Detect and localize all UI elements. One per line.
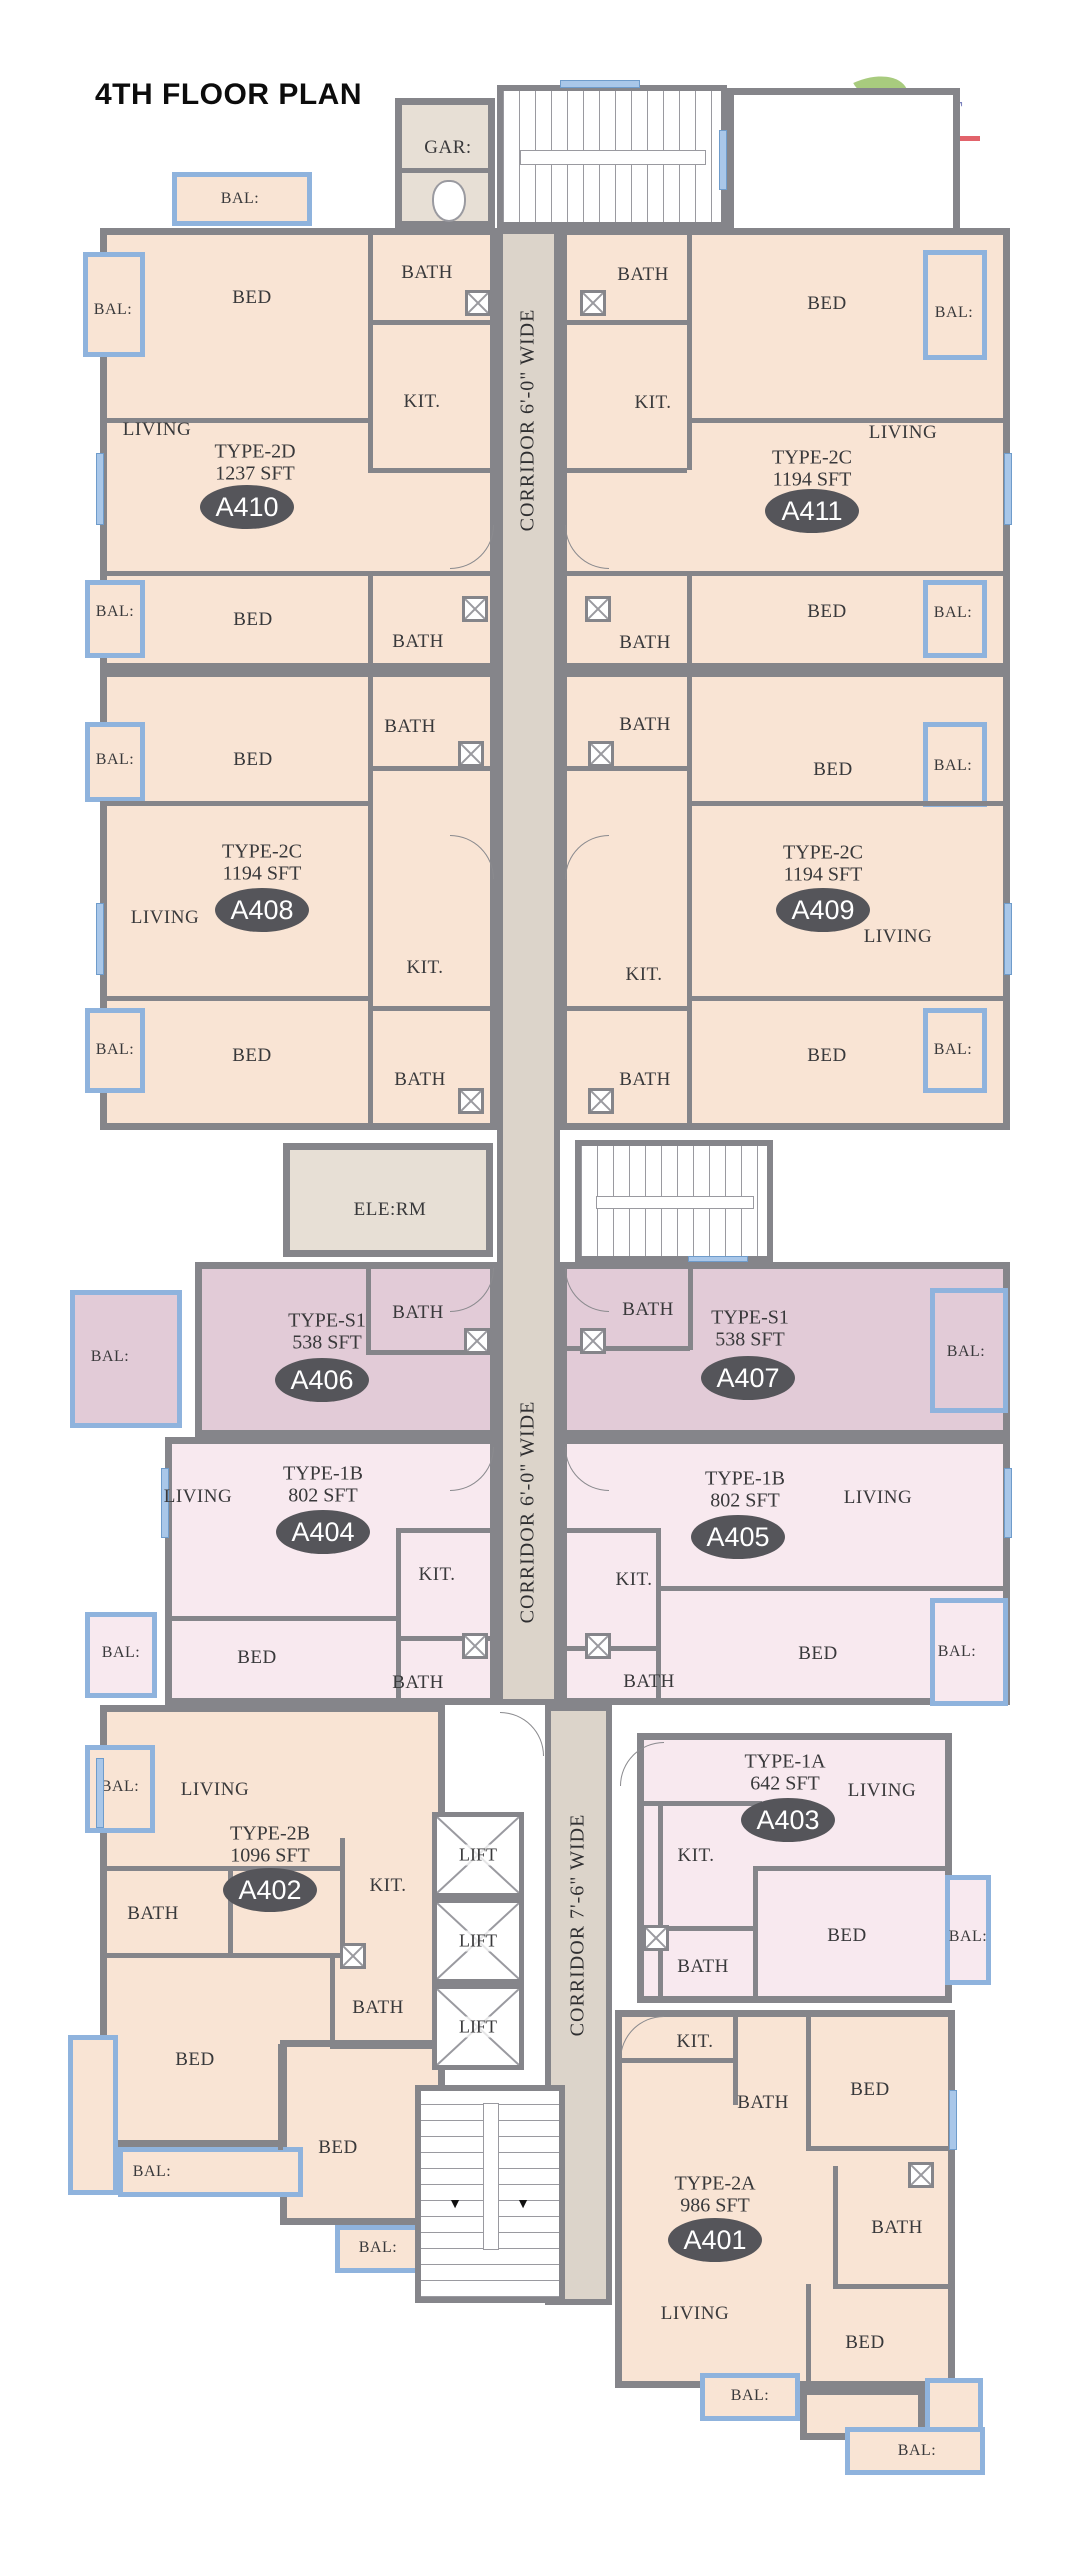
room-label-bed: BED <box>807 293 847 315</box>
window-strip <box>1004 903 1012 975</box>
room-label-bed: BED <box>850 2079 890 2101</box>
balcony-label: BAL: <box>133 2163 171 2181</box>
door-arc <box>620 1742 664 1786</box>
room-label-bed: BED <box>813 759 853 781</box>
balcony-label: BAL: <box>938 1643 976 1661</box>
interior-wall <box>658 1801 663 2003</box>
unit-a410 <box>100 228 497 670</box>
unit-area-a406: 538 SFT <box>292 1332 361 1355</box>
room-label-living: LIVING <box>844 1487 912 1509</box>
unit-number-a408: A408 <box>215 888 309 932</box>
unit-type-a409: TYPE-2C <box>783 842 863 865</box>
balcony-label: BAL: <box>934 757 972 775</box>
duct-shaft <box>588 741 614 767</box>
corridor-label: CORRIDOR 6'-0" WIDE <box>517 309 540 532</box>
unit-number-a401: A401 <box>668 2218 762 2262</box>
interior-wall <box>688 1262 693 1350</box>
interior-wall <box>366 1262 371 1355</box>
room-label-living: LIVING <box>123 419 191 441</box>
wc-fixture <box>432 180 466 222</box>
unit-area-a409: 1194 SFT <box>784 864 863 887</box>
room-label-bed: BED <box>232 1045 272 1067</box>
balcony-label: BAL: <box>731 2387 769 2405</box>
unit-area-a401: 986 SFT <box>680 2195 749 2218</box>
duct-shaft <box>585 1633 611 1659</box>
interior-wall <box>368 571 373 670</box>
room-label-bed: BED <box>232 287 272 309</box>
unit-area-a403: 642 SFT <box>750 1773 819 1796</box>
balcony-label: BAL: <box>935 304 973 322</box>
unit-area-a402: 1096 SFT <box>230 1845 309 1868</box>
unit-area-a410: 1237 SFT <box>215 463 294 486</box>
duct-shaft <box>462 1633 488 1659</box>
unit-area-a407: 538 SFT <box>715 1329 784 1352</box>
balcony-label: BAL: <box>949 1928 987 1946</box>
unit-type-a406: TYPE-S1 <box>288 1310 366 1333</box>
room-label-elerm: ELE:RM <box>354 1199 427 1221</box>
unit-number-a403: A403 <box>741 1798 835 1842</box>
window-strip <box>560 80 640 88</box>
room-label-bath: BATH <box>127 1903 179 1925</box>
interior-wall <box>687 228 692 470</box>
lift-shaft: LIFT <box>432 1984 524 2070</box>
unit-type-a407: TYPE-S1 <box>711 1307 789 1330</box>
interior-wall <box>368 1006 497 1011</box>
window-strip <box>1004 1468 1012 1538</box>
duct-shaft <box>643 1925 669 1951</box>
room-label-bath: BATH <box>623 1671 675 1693</box>
room-label-living: LIVING <box>661 2303 729 2325</box>
room-label-kit: KIT. <box>404 391 441 413</box>
room-label-living: LIVING <box>164 1486 232 1508</box>
lift-label: LIFT <box>456 1931 500 1952</box>
balcony <box>925 2378 983 2433</box>
interior-wall <box>560 766 687 771</box>
interior-wall <box>660 1586 1010 1591</box>
interior-wall <box>833 2284 955 2289</box>
room-label-bath: BATH <box>394 1069 446 1091</box>
balcony-label: BAL: <box>94 301 132 319</box>
stair-rail <box>520 150 705 165</box>
interior-wall <box>806 2146 955 2151</box>
room-label-living: LIVING <box>131 907 199 929</box>
unit-area-a408: 1194 SFT <box>223 863 302 886</box>
room-label-kit: KIT. <box>370 1875 407 1897</box>
page-title: 4TH FLOOR PLAN <box>95 78 362 112</box>
room-label-bed: BED <box>175 2049 215 2071</box>
room-label-bath: BATH <box>871 2217 923 2239</box>
lift-label: LIFT <box>456 1845 500 1866</box>
duct-shaft <box>588 1088 614 1114</box>
room-label-kit: KIT. <box>616 1569 653 1591</box>
room-label-bath: BATH <box>352 1997 404 2019</box>
room-label-kit: KIT. <box>407 957 444 979</box>
duct-shaft <box>465 290 491 316</box>
interior-wall <box>330 1956 335 2048</box>
unit-number-a406: A406 <box>275 1358 369 1402</box>
room-label-bath: BATH <box>392 1302 444 1324</box>
interior-wall <box>100 801 372 806</box>
interior-wall <box>658 1926 758 1931</box>
room-label-kit: KIT. <box>419 1564 456 1586</box>
window-strip <box>96 903 104 975</box>
room-label-kit: KIT. <box>677 2031 714 2053</box>
balcony-label: BAL: <box>91 1348 129 1366</box>
balcony-label: BAL: <box>101 1778 139 1796</box>
room-label-bed: BED <box>237 1647 277 1669</box>
duct-shaft <box>458 741 484 767</box>
room-label-bath: BATH <box>401 262 453 284</box>
unit-type-a405: TYPE-1B <box>705 1468 785 1491</box>
balcony-label: BAL: <box>96 603 134 621</box>
room-label-living: LIVING <box>848 1780 916 1802</box>
room-label-bath: BATH <box>384 716 436 738</box>
balcony-label: BAL: <box>221 190 259 208</box>
unit-a401 <box>615 2010 955 2388</box>
interior-wall <box>560 1528 661 1533</box>
window-strip <box>688 1256 748 1262</box>
window-strip <box>949 2090 957 2150</box>
unit-type-a411: TYPE-2C <box>772 447 852 470</box>
unit-type-a403: TYPE-1A <box>744 1751 825 1774</box>
unit-number-a410: A410 <box>200 485 294 529</box>
interior-wall <box>330 2044 448 2049</box>
balcony-label: BAL: <box>96 1041 134 1059</box>
top-lobby <box>727 88 960 235</box>
unit-type-a402: TYPE-2B <box>230 1823 310 1846</box>
unit-number-a411: A411 <box>765 489 859 533</box>
stair-rail <box>596 1196 754 1209</box>
room-label-living: LIVING <box>864 926 932 948</box>
interior-wall <box>687 996 1010 1001</box>
interior-wall <box>560 468 687 473</box>
interior-wall <box>806 2010 811 2150</box>
interior-wall <box>396 1528 497 1533</box>
duct-shaft <box>580 290 606 316</box>
balcony-label: BAL: <box>102 1644 140 1662</box>
unit-number-a402: A402 <box>223 1868 317 1912</box>
interior-wall <box>165 1616 398 1621</box>
stair-down-arrow: ▼ <box>516 2197 530 2213</box>
room-label-bed: BED <box>318 2137 358 2159</box>
interior-wall <box>560 320 687 325</box>
room-label-kit: KIT. <box>626 964 663 986</box>
lift-label: LIFT <box>456 2017 500 2038</box>
room-label-bath: BATH <box>622 1299 674 1321</box>
room-label-bed: BED <box>827 1925 867 1947</box>
duct-shaft <box>340 1943 366 1969</box>
room-label-bath: BATH <box>737 2092 789 2114</box>
room-label-living: LIVING <box>869 422 937 444</box>
room-label-living: LIVING <box>181 1779 249 1801</box>
balcony-label: BAL: <box>947 1343 985 1361</box>
room-label-bed: BED <box>807 1045 847 1067</box>
room-label-kit: KIT. <box>635 392 672 414</box>
window-strip <box>96 453 104 525</box>
interior-wall <box>368 468 497 473</box>
interior-wall <box>560 1006 687 1011</box>
duct-shaft <box>908 2162 934 2188</box>
corridor-label: CORRIDOR 6'-0" WIDE <box>517 1401 540 1624</box>
interior-wall <box>833 2166 838 2288</box>
room-label-bed: BED <box>807 601 847 623</box>
interior-wall <box>100 1953 345 1958</box>
interior-wall <box>753 1866 758 2003</box>
balcony-label: BAL: <box>934 1041 972 1059</box>
stairs-bottom <box>415 2085 565 2303</box>
interior-wall <box>560 571 1010 576</box>
unit-area-a405: 802 SFT <box>710 1490 779 1513</box>
balcony-label: BAL: <box>898 2442 936 2460</box>
corridor-label: CORRIDOR 7'-6" WIDE <box>567 1814 590 2037</box>
room-label-bed: BED <box>233 749 273 771</box>
stairs-top <box>497 85 727 228</box>
interior-wall <box>687 571 692 670</box>
lift-shaft: LIFT <box>432 1898 524 1984</box>
balcony-label: BAL: <box>96 751 134 769</box>
unit-number-a409: A409 <box>776 888 870 932</box>
interior-wall <box>368 228 373 470</box>
interior-wall <box>368 670 373 1130</box>
window-strip <box>96 1758 104 1828</box>
room-label-bath: BATH <box>617 264 669 286</box>
interior-wall <box>100 571 497 576</box>
interior-wall <box>687 418 1010 423</box>
interior-wall <box>637 1801 762 1806</box>
room-label-bath: BATH <box>619 714 671 736</box>
floor-plan-canvas: 4TH FLOOR PLAN The Springs JT Apartment … <box>0 0 1075 2560</box>
interior-wall <box>100 996 372 1001</box>
duct-shaft <box>458 1088 484 1114</box>
room-label-bath: BATH <box>392 631 444 653</box>
stairs-middle <box>575 1140 773 1262</box>
unit-number-a407: A407 <box>701 1356 795 1400</box>
interior-wall <box>806 2284 811 2388</box>
room-label-bed: BED <box>233 609 273 631</box>
balcony <box>68 2035 118 2195</box>
duct-shaft <box>580 1328 606 1354</box>
duct-shaft <box>462 596 488 622</box>
unit-area-a404: 802 SFT <box>288 1485 357 1508</box>
room-label-bath: BATH <box>392 1672 444 1694</box>
duct-shaft <box>585 596 611 622</box>
unit-number-a404: A404 <box>276 1510 370 1554</box>
duct-shaft <box>464 1328 490 1354</box>
unit-type-a408: TYPE-2C <box>222 841 302 864</box>
balcony-label: BAL: <box>934 604 972 622</box>
unit-number-a405: A405 <box>691 1515 785 1559</box>
door-arc <box>500 1712 544 1756</box>
room-label-kit: KIT. <box>678 1845 715 1867</box>
unit-type-a401: TYPE-2A <box>674 2173 755 2196</box>
interior-wall <box>368 320 497 325</box>
stair-rail <box>483 2103 499 2249</box>
interior-wall <box>753 1866 952 1871</box>
room-label-bath: BATH <box>677 1956 729 1978</box>
interior-wall <box>687 670 692 1130</box>
window-strip <box>719 130 727 190</box>
interior-wall <box>687 801 1010 806</box>
balcony-label: BAL: <box>359 2239 397 2257</box>
stair-down-arrow: ▼ <box>448 2197 462 2213</box>
window-strip <box>1004 453 1012 525</box>
room-label-gar: GAR: <box>424 137 471 159</box>
room-label-bed: BED <box>845 2332 885 2354</box>
interior-wall <box>278 2044 283 2150</box>
lift-shaft: LIFT <box>432 1812 524 1898</box>
unit-type-a410: TYPE-2D <box>214 441 295 464</box>
room-label-bath: BATH <box>619 632 671 654</box>
interior-wall <box>395 168 495 173</box>
room-label-bed: BED <box>798 1643 838 1665</box>
unit-type-a404: TYPE-1B <box>283 1463 363 1486</box>
room-label-bath: BATH <box>619 1069 671 1091</box>
